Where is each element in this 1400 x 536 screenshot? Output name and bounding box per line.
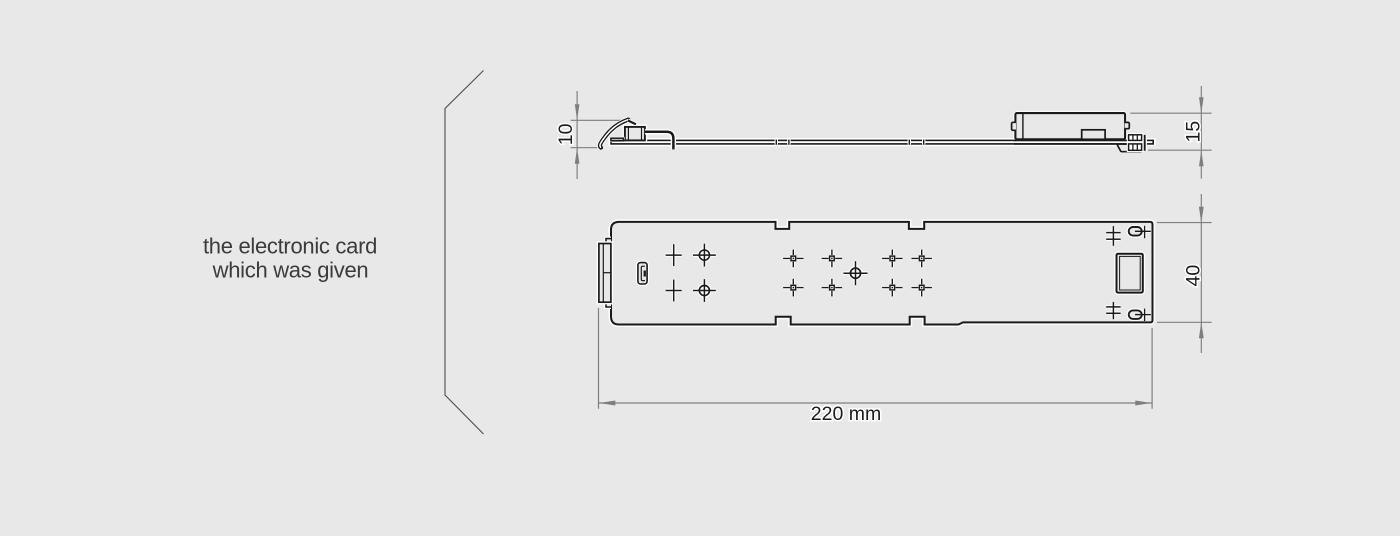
svg-text:10: 10	[555, 123, 577, 145]
svg-text:the electronic card: the electronic card	[203, 233, 377, 258]
svg-text:40: 40	[1183, 265, 1205, 287]
svg-text:220 mm: 220 mm	[811, 403, 881, 425]
svg-text:15: 15	[1182, 121, 1204, 143]
svg-text:which was given: which was given	[212, 257, 369, 282]
